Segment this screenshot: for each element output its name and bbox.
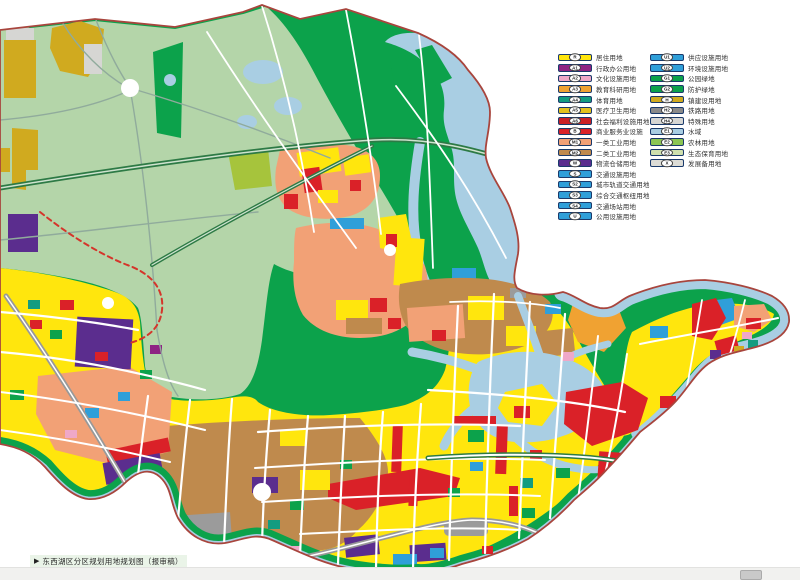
legend-label: 公园绿地 [688, 73, 715, 83]
legend-item: M1一类工业用地 [558, 137, 650, 148]
map-shape-dg [153, 42, 183, 138]
legend-label: 居住用地 [596, 52, 623, 62]
map-shape-pnk [562, 352, 574, 361]
legend-item: E2农林用地 [650, 137, 728, 148]
map-shape-yel [336, 300, 368, 320]
map-shape-red [60, 300, 74, 310]
legend-item: G2防护绿地 [650, 84, 728, 95]
legend-code: G1 [661, 75, 673, 83]
legend-code: G2 [661, 85, 673, 93]
map-shape-wht [102, 297, 114, 309]
legend-label: 城市轨道交通用地 [596, 179, 650, 189]
map-shape-red [95, 352, 108, 361]
legend-swatch: S2 [558, 181, 592, 189]
scrollbar-thumb[interactable] [740, 570, 762, 580]
legend-label: 社会福利设施用地 [596, 116, 650, 126]
legend-item: U公用设施用地 [558, 211, 650, 222]
map-shape-red [495, 426, 508, 474]
legend-code: X [661, 159, 673, 167]
legend-swatch: A5 [558, 107, 592, 115]
map-shape-blu [452, 268, 476, 279]
map-shape-dg [0, 2, 12, 14]
map-shape-gold [4, 40, 36, 98]
legend-item: X发展备用地 [650, 158, 728, 169]
bottom-bar [0, 567, 800, 580]
map-shape-pur [8, 214, 38, 252]
legend-label: 文化设施用地 [596, 73, 636, 83]
map-shape-brn [346, 318, 382, 334]
legend-label: 一类工业用地 [596, 137, 636, 147]
caption-marker-icon: ▶ [34, 557, 39, 565]
map-shape-red [576, 520, 588, 529]
map-shape-red [370, 298, 387, 312]
legend-swatch: H [650, 96, 684, 104]
map-shape-red [284, 194, 298, 209]
legend-item: S4交通场站用地 [558, 200, 650, 211]
legend-swatch: W [558, 159, 592, 167]
legend-item: A3教育科研用地 [558, 84, 650, 95]
legend-item: E1水域 [650, 126, 728, 137]
legend-item: H4特殊用地 [650, 116, 728, 127]
map-shape-pnk [742, 332, 752, 339]
map-shape-blu [470, 462, 483, 471]
map-shape-blu [430, 548, 444, 558]
legend-code: A4 [569, 96, 581, 104]
legend-item: A5医疗卫生用地 [558, 105, 650, 116]
map-shape-red [30, 320, 42, 329]
caption-text: 东西湖区分区规划用地规划图（报审稿） [42, 556, 182, 567]
map-shape-wht [121, 79, 139, 97]
map-shape-red [660, 396, 676, 408]
legend-item: W物流仓储用地 [558, 158, 650, 169]
legend-swatch: S [558, 170, 592, 178]
legend-code: S3 [569, 191, 581, 199]
map-shape-red [482, 546, 493, 554]
map-shape-yel [318, 190, 338, 203]
legend-swatch: U [558, 212, 592, 220]
planning-map-viewer: R居住用地A1行政办公用地A2文化设施用地A3教育科研用地A4体育用地A5医疗卫… [0, 0, 800, 580]
legend-swatch: A4 [558, 96, 592, 104]
legend-item: U2环境设施用地 [650, 63, 728, 74]
legend-item: U1供应设施用地 [650, 52, 728, 63]
map-shape-wat [243, 60, 283, 84]
legend-label: 公用设施用地 [596, 211, 636, 221]
legend-label: 行政办公用地 [596, 63, 636, 73]
legend-swatch: A1 [558, 64, 592, 72]
legend-swatch: A6 [558, 117, 592, 125]
legend-swatch: E2 [650, 138, 684, 146]
legend-label: 农林用地 [688, 137, 715, 147]
legend-swatch: A2 [558, 75, 592, 83]
legend-column-right: U1供应设施用地U2环境设施用地G1公园绿地G2防护绿地H镇建设用地H2铁路用地… [650, 52, 728, 169]
map-shape-tea [268, 520, 280, 529]
map-shape-blu [650, 326, 668, 338]
legend-code: S2 [569, 181, 581, 189]
map-shape-dg [556, 468, 570, 478]
legend-swatch: R [558, 54, 592, 62]
legend-code: E3 [661, 149, 673, 157]
map-shape-pur [0, 460, 18, 475]
legend-label: 交通设施用地 [596, 169, 636, 179]
legend-label: 商业服务业设施 [596, 126, 643, 136]
legend-item: H镇建设用地 [650, 94, 728, 105]
legend-item: M2二类工业用地 [558, 147, 650, 158]
legend-item: A1行政办公用地 [558, 63, 650, 74]
legend-item: A2文化设施用地 [558, 73, 650, 84]
legend-item: B商业服务业设施 [558, 126, 650, 137]
map-shape-red [391, 426, 403, 472]
legend-label: 二类工业用地 [596, 148, 636, 158]
legend-code: S4 [569, 202, 581, 210]
legend-code: H [661, 96, 673, 104]
legend-item: S3综合交通枢纽用地 [558, 190, 650, 201]
map-shape-gold [0, 148, 10, 172]
legend-code: W [569, 159, 581, 167]
legend-swatch: H2 [650, 107, 684, 115]
map-shape-wht [253, 483, 271, 501]
legend-code: M1 [569, 138, 581, 146]
legend-swatch: A3 [558, 85, 592, 93]
legend-code: U2 [661, 64, 673, 72]
legend-swatch: E3 [650, 149, 684, 157]
legend-label: 环境设施用地 [688, 63, 728, 73]
legend-code: U [569, 212, 581, 220]
legend-label: 防护绿地 [688, 84, 715, 94]
map-shape-red [509, 486, 518, 516]
map-shape-red [350, 180, 361, 191]
legend-label: 供应设施用地 [688, 52, 728, 62]
legend-code: E2 [661, 138, 673, 146]
legend-item: R居住用地 [558, 52, 650, 63]
legend-item: H2铁路用地 [650, 105, 728, 116]
legend-item: S2城市轨道交通用地 [558, 179, 650, 190]
legend-code: S [569, 170, 581, 178]
legend-item: S交通设施用地 [558, 169, 650, 180]
legend-swatch: X [650, 159, 684, 167]
legend-swatch: U2 [650, 64, 684, 72]
legend-swatch: M1 [558, 138, 592, 146]
legend-item: A4体育用地 [558, 94, 650, 105]
map-shape-pnk [686, 408, 697, 416]
legend-code: B [569, 128, 581, 136]
legend-code: R [569, 54, 581, 62]
legend-swatch: H4 [650, 117, 684, 125]
legend-code: A1 [569, 64, 581, 72]
legend-label: 特殊用地 [688, 116, 715, 126]
legend-label: 综合交通枢纽用地 [596, 190, 650, 200]
legend-label: 镇建设用地 [688, 95, 722, 105]
legend-code: A2 [569, 75, 581, 83]
legend-code: E1 [661, 128, 673, 136]
legend-code: A3 [569, 85, 581, 93]
legend-swatch: G2 [650, 85, 684, 93]
legend-code: U1 [661, 54, 673, 62]
map-shape-dg [522, 508, 535, 518]
map-shape-red [514, 406, 530, 418]
map-shape-tea [28, 300, 40, 309]
legend-label: 物流仓储用地 [596, 158, 636, 168]
map-shape-red [432, 330, 446, 341]
map-shape-lgry [84, 44, 102, 74]
legend-label: 铁路用地 [688, 105, 715, 115]
legend-label: 发展备用地 [688, 158, 722, 168]
legend-code: H4 [661, 117, 673, 125]
legend-label: 交通场站用地 [596, 201, 636, 211]
map-shape-dg [468, 430, 484, 442]
legend-swatch: S3 [558, 191, 592, 199]
legend-code: A5 [569, 107, 581, 115]
legend-swatch: E1 [650, 128, 684, 136]
map-shape-dg [50, 330, 62, 339]
map-shape-red [388, 318, 401, 329]
legend-item: A6社会福利设施用地 [558, 116, 650, 127]
map-shape-pnk [65, 430, 77, 438]
legend-label: 教育科研用地 [596, 84, 636, 94]
map-shape-yel [280, 430, 306, 446]
map-caption: ▶ 东西湖区分区规划用地规划图（报审稿） [30, 555, 187, 567]
legend-swatch: G1 [650, 75, 684, 83]
legend-swatch: M2 [558, 149, 592, 157]
legend-label: 体育用地 [596, 95, 623, 105]
legend-swatch: S4 [558, 202, 592, 210]
legend-label: 生态保育用地 [688, 148, 728, 158]
legend-column-left: R居住用地A1行政办公用地A2文化设施用地A3教育科研用地A4体育用地A5医疗卫… [558, 52, 650, 222]
legend-item: G1公园绿地 [650, 73, 728, 84]
map-shape-blu [118, 392, 130, 401]
legend-code: M2 [569, 149, 581, 157]
map-shape-lgry [6, 28, 34, 41]
legend-code: H2 [661, 107, 673, 115]
legend-swatch: U1 [650, 54, 684, 62]
map-shape-wht [384, 244, 396, 256]
map-shape-dg [700, 380, 712, 389]
legend-label: 水域 [688, 126, 701, 136]
legend-label: 医疗卫生用地 [596, 105, 636, 115]
map-shape-yel [468, 296, 504, 320]
legend-swatch: B [558, 128, 592, 136]
legend-code: A6 [569, 117, 581, 125]
legend-item: E3生态保育用地 [650, 147, 728, 158]
map-shape-wat [164, 74, 176, 86]
